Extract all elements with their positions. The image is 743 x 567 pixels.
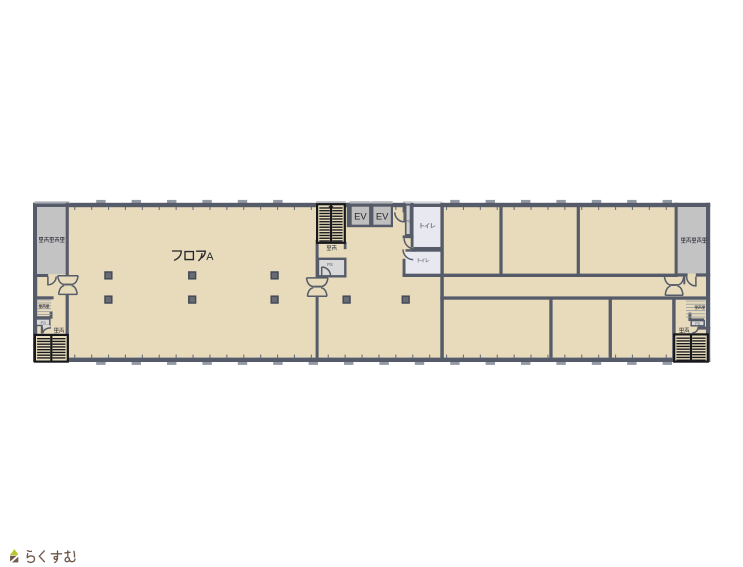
svg-text:PS: PS xyxy=(695,322,700,326)
svg-text:EV: EV xyxy=(354,210,367,221)
svg-text:EV: EV xyxy=(376,210,389,221)
svg-text:PS: PS xyxy=(405,219,411,223)
svg-text:PS: PS xyxy=(41,321,47,325)
svg-text:A: A xyxy=(206,251,214,263)
svg-text:PS: PS xyxy=(327,262,333,267)
